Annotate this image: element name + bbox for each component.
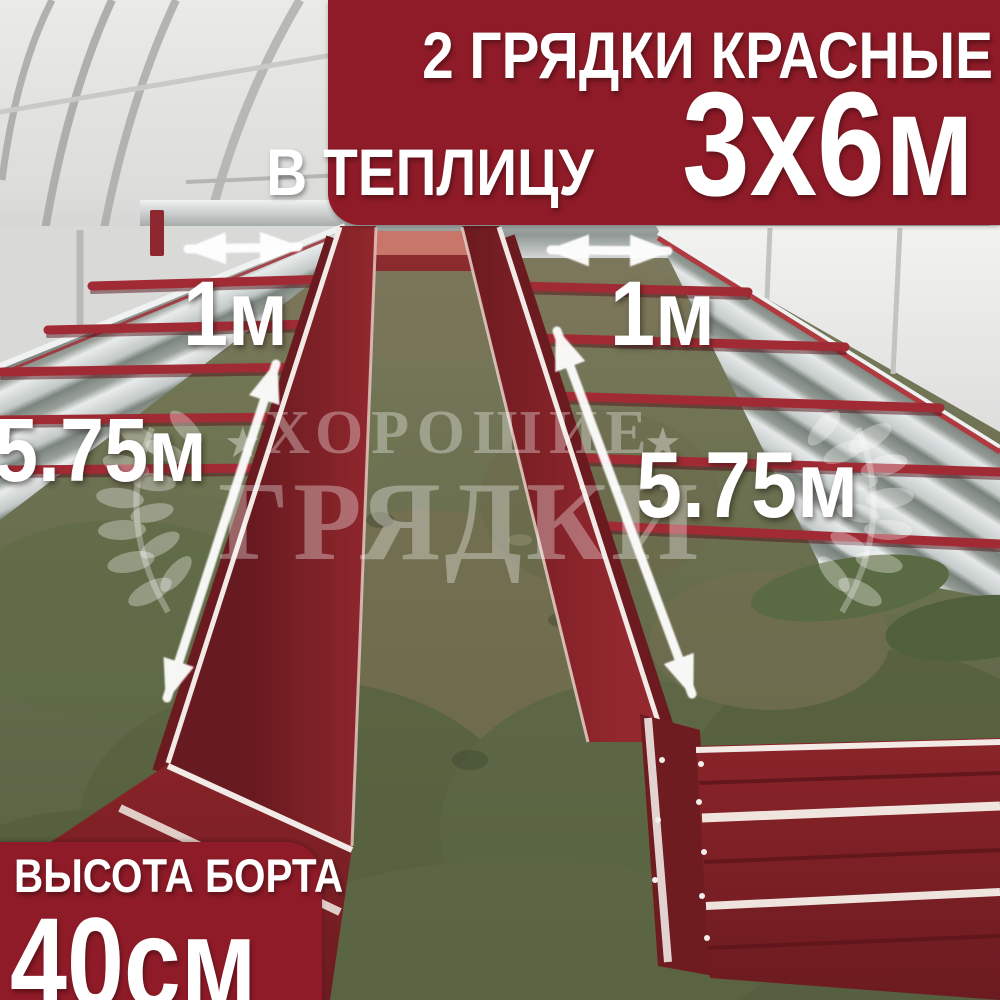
label-width-right: 1м — [610, 268, 729, 360]
label-length-right-text: 5.75м — [636, 438, 858, 532]
arrow-width-left — [188, 247, 298, 249]
top-banner-line2-text: В ТЕПЛИЦУ — [266, 139, 593, 205]
label-width-left-text: 1м — [183, 268, 288, 360]
top-banner-line2: В ТЕПЛИЦУ 3х6м — [213, 78, 974, 211]
product-photo-card: ХОРОШИЕ ГРЯДКИ ★ ★ 1м 1м 5.75м 5.75м 2 Г… — [0, 0, 1000, 1000]
bottom-banner-value: 40см — [10, 900, 257, 1000]
label-length-right: 5.75м — [636, 438, 889, 532]
arrow-width-right — [551, 250, 668, 251]
top-banner: 2 ГРЯДКИ КРАСНЫЕ В ТЕПЛИЦУ 3х6м — [328, 0, 1000, 225]
label-width-right-text: 1м — [610, 268, 715, 360]
label-length-left-text: 5.75м — [0, 406, 207, 496]
label-length-left: 5.75м — [0, 406, 236, 496]
label-width-left: 1м — [183, 268, 302, 360]
top-banner-size-value: 3х6м — [682, 78, 974, 211]
red-post — [150, 210, 164, 256]
bottom-banner: ВЫСОТА БОРТА 40см — [0, 842, 322, 1000]
